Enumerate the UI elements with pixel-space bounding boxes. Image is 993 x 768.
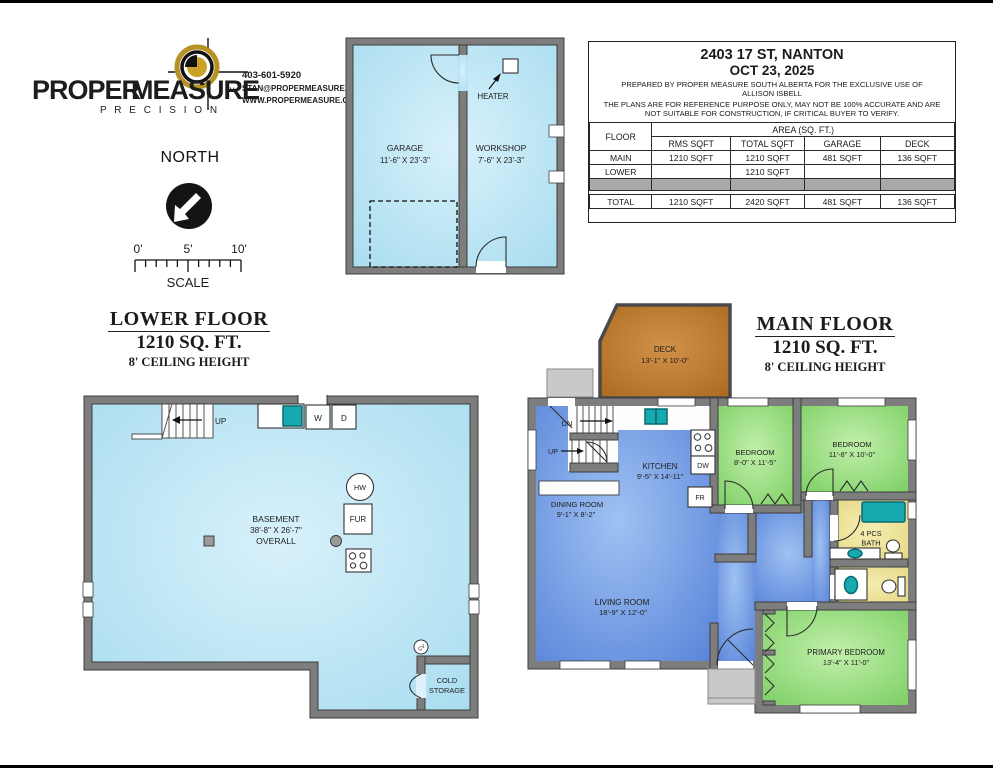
dining-window (528, 430, 536, 470)
garage-room-label: GARAGE (387, 143, 424, 153)
col-header-total: TOTAL SQFT (730, 137, 804, 151)
main-floor-plan: DECK 13'-1" X 10'-0" (525, 297, 945, 725)
living-window-1 (560, 661, 610, 669)
lower-floor-cell: LOWER (590, 165, 652, 179)
prepared-line2: ALLISON ISBELL (742, 89, 802, 98)
basement-window-right-2 (469, 600, 479, 614)
col-header-rms: RMS SQFT (652, 137, 730, 151)
bath-window-right (908, 502, 916, 519)
total-deck-cell: 136 SQFT (880, 195, 954, 209)
property-address: 2403 17 ST, NANTON (589, 47, 955, 63)
lower-total-cell: 1210 SQFT (730, 165, 804, 179)
patio-pad (547, 369, 593, 397)
floorplan-sheet: { "colors": { "wall_gray": "#7d7d7d", "w… (0, 0, 993, 768)
report-date: OCT 23, 2025 (589, 63, 955, 78)
workshop-window-1 (549, 125, 564, 137)
lower-floor-ceiling: 8' CEILING HEIGHT (99, 355, 279, 370)
north-compass-icon (160, 178, 220, 238)
disclaimer-line1: THE PLANS ARE FOR REFERENCE PURPOSE ONLY… (604, 100, 941, 109)
bath2-vanity (835, 569, 867, 600)
lower-floor-title: LOWER FLOOR (99, 308, 279, 331)
deck-dims: 13'-1" X 10'-0" (641, 356, 689, 365)
lower-floor-title-text: LOWER FLOOR (108, 308, 270, 332)
company-logo: PROPER MEASURE TM P R E C I S I O N 403-… (30, 36, 340, 136)
bedroom2-window (838, 398, 885, 406)
bedroom1-dims: 8'-0" X 11'-5" (734, 458, 776, 467)
workshop-window-2 (549, 171, 564, 183)
primary-label: PRIMARY BEDROOM (807, 648, 885, 657)
crawl-vent: CV (414, 640, 428, 654)
area-table: FLOOR AREA (SQ. FT.) RMS SQFT TOTAL SQFT… (589, 122, 955, 209)
bedroom2-floor (801, 406, 908, 492)
main-total-cell: 1210 SQFT (730, 151, 804, 165)
basement-overall-label: OVERALL (256, 536, 296, 546)
bathtub (862, 502, 905, 522)
main-garage-cell: 481 SQFT (805, 151, 880, 165)
north-label: NORTH (145, 149, 235, 167)
heater-label: HEATER (477, 92, 508, 101)
basement-window-left-2 (83, 602, 93, 617)
table-row-lower: LOWER 1210 SQFT (590, 165, 955, 179)
scale-bar: 0' 5' 10' SCALE (128, 240, 253, 295)
total-total-cell: 2420 SQFT (730, 195, 804, 209)
scale-tick-5: 5' (184, 242, 193, 256)
bedroom2-dims: 11'-8" X 10'-0" (829, 450, 876, 459)
basement-window-right-1 (469, 584, 479, 598)
kitchen-label: KITCHEN (642, 462, 677, 471)
living-dims: 18'-9" X 12'-0" (599, 608, 647, 617)
dining-closet-strip (539, 481, 619, 495)
col-header-deck: DECK (880, 137, 954, 151)
laundry-sink (258, 404, 304, 428)
workshop-room-dims: 7'-6" X 23'-3" (478, 156, 524, 165)
kitchen-dims: 9'-5" X 14'-11" (637, 472, 684, 481)
disclaimer-line2: NOT SUITABLE FOR CONSTRUCTION, IF CRITIC… (645, 109, 899, 118)
support-post (204, 536, 214, 546)
basement-room-dims: 38'-8" X 26'-7" (250, 526, 302, 535)
lower-rms-cell (652, 165, 730, 179)
brand-tagline: P R E C I S I O N (100, 105, 220, 116)
cold-storage-label-1: COLD (437, 676, 458, 685)
logo-phone: 403-601-5920 (242, 70, 301, 81)
lower-floor-title-block: LOWER FLOOR 1210 SQ. FT. 8' CEILING HEIG… (99, 308, 279, 370)
primary-window-bottom (800, 705, 860, 713)
fridge-label: FR (695, 495, 704, 502)
brand-proper: PROPER (32, 75, 141, 105)
main-rms-cell: 1210 SQFT (652, 151, 730, 165)
hot-water-label: HW (354, 483, 366, 492)
primary-window-right (908, 640, 916, 690)
garage-plan: HEATER GARAGE 11'-6" X 23'-3" WORKSHOP 7… (343, 35, 567, 277)
floor-drain (331, 536, 342, 547)
dishwasher-label: DW (697, 463, 709, 470)
total-garage-cell: 481 SQFT (805, 195, 880, 209)
workshop-room-label: WORKSHOP (476, 143, 527, 153)
furnace-label: FUR (350, 515, 367, 524)
bath-vanity (830, 548, 880, 559)
prepared-by-text: PREPARED BY PROPER MEASURE SOUTH ALBERTA… (589, 80, 955, 98)
col-header-garage: GARAGE (805, 137, 880, 151)
deck: DECK 13'-1" X 10'-0" (600, 305, 730, 398)
front-step-2 (708, 698, 755, 704)
hallway-strip-floor (812, 500, 830, 602)
col-header-floor: FLOOR (590, 123, 652, 151)
basement-stove-icon (346, 549, 371, 572)
scale-tick-10: 10' (231, 242, 247, 256)
prepared-line1: PREPARED BY PROPER MEASURE SOUTH ALBERTA… (621, 80, 922, 89)
brand-tm: TM (226, 88, 235, 94)
cold-storage-label-2: STORAGE (429, 686, 465, 695)
top-border (0, 0, 993, 3)
basement-room-label: BASEMENT (252, 514, 300, 524)
living-window-2 (625, 661, 660, 669)
table-row-total: TOTAL 1210 SQFT 2420 SQFT 481 SQFT 136 S… (590, 195, 955, 209)
total-rms-cell: 1210 SQFT (652, 195, 730, 209)
bedroom1-label: BEDROOM (735, 448, 774, 457)
info-panel: 2403 17 ST, NANTON OCT 23, 2025 PREPARED… (588, 41, 956, 223)
total-floor-cell: TOTAL (590, 195, 652, 209)
basement-up-label: UP (215, 417, 227, 426)
washer-label: W (314, 414, 322, 423)
scale-tick-0: 0' (134, 242, 143, 256)
lower-floor-area: 1210 SQ. FT. (99, 332, 279, 354)
table-row-main: MAIN 1210 SQFT 1210 SQFT 481 SQFT 136 SQ… (590, 151, 955, 165)
col-header-area: AREA (SQ. FT.) (652, 123, 955, 137)
deck-label: DECK (654, 345, 677, 354)
basement-window-left-1 (83, 582, 93, 597)
disclaimer-text: THE PLANS ARE FOR REFERENCE PURPOSE ONLY… (589, 100, 955, 118)
garage-room-dims: 11'-6" X 23'-3" (380, 156, 430, 165)
bath-label-2: BATH (861, 539, 880, 548)
front-step (708, 669, 755, 698)
scale-label: SCALE (167, 275, 210, 290)
dining-dims: 9'-1" X 8'-2" (557, 510, 596, 519)
bedroom2-label: BEDROOM (832, 440, 871, 449)
kitchen-sink (645, 409, 667, 424)
brand-measure: MEASURE (131, 75, 259, 105)
kitchen-window (658, 398, 695, 406)
lower-garage-cell (805, 165, 880, 179)
kitchen-stove-icon (691, 430, 715, 456)
living-label: LIVING ROOM (595, 598, 650, 607)
dining-label: DINING ROOM (551, 500, 603, 509)
primary-dims: 13'-4" X 11'-0" (823, 658, 870, 667)
bedroom2-window-right (908, 420, 916, 460)
lower-floor-plan: UP W D HW FUR BASEMENT 38'-8" X 26'-7" O… (80, 390, 492, 722)
bath-label-1: 4 PCS (860, 529, 881, 538)
dryer-label: D (341, 414, 347, 423)
up-label-main: UP (548, 447, 558, 456)
bedroom1-window (728, 398, 768, 406)
lower-deck-cell (880, 165, 954, 179)
main-deck-cell: 136 SQFT (880, 151, 954, 165)
main-floor-cell: MAIN (590, 151, 652, 165)
table-row-separator (590, 179, 955, 191)
